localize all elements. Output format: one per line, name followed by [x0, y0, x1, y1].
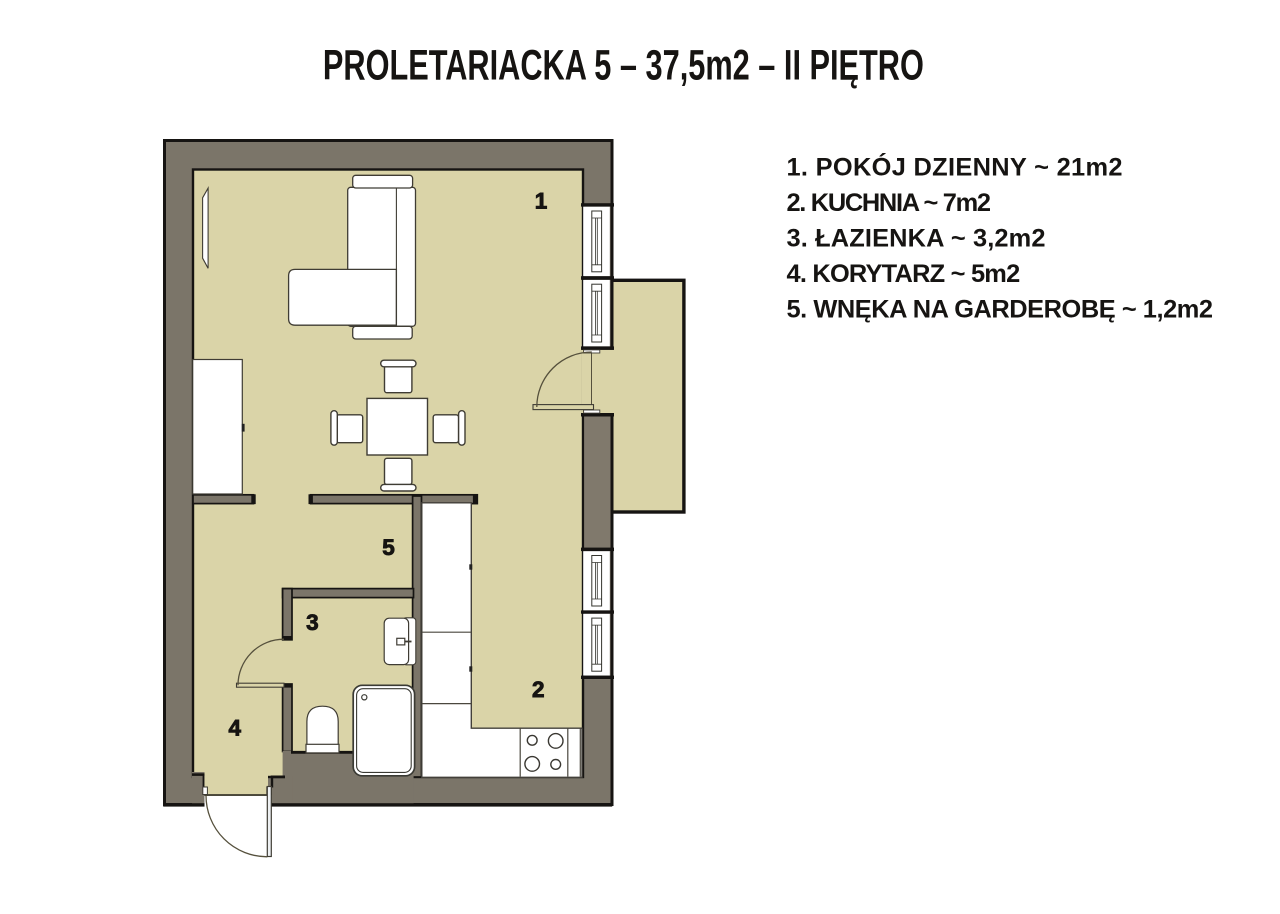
svg-text:1: 1 — [535, 188, 548, 213]
svg-text:3. ŁAZIENKA ~ 3,2m2: 3. ŁAZIENKA ~ 3,2m2 — [787, 225, 1046, 253]
svg-text:2: 2 — [532, 677, 545, 702]
svg-text:1. POKÓJ DZIENNY ~ 21m2: 1. POKÓJ DZIENNY ~ 21m2 — [787, 152, 1123, 182]
svg-text:4: 4 — [229, 716, 242, 741]
svg-text:5: 5 — [382, 535, 395, 560]
svg-text:5. WNĘKA NA GARDEROBĘ ~ 1,2m2: 5. WNĘKA NA GARDEROBĘ ~ 1,2m2 — [787, 296, 1214, 324]
svg-text:2. KUCHNIA ~ 7m2: 2. KUCHNIA ~ 7m2 — [787, 189, 992, 217]
svg-text:3: 3 — [306, 610, 319, 635]
svg-text:4. KORYTARZ ~ 5m2: 4. KORYTARZ ~ 5m2 — [787, 260, 1021, 288]
svg-text:PROLETARIACKA 5 – 37,5m2 – II: PROLETARIACKA 5 – 37,5m2 – II PIĘTRO — [323, 43, 924, 90]
